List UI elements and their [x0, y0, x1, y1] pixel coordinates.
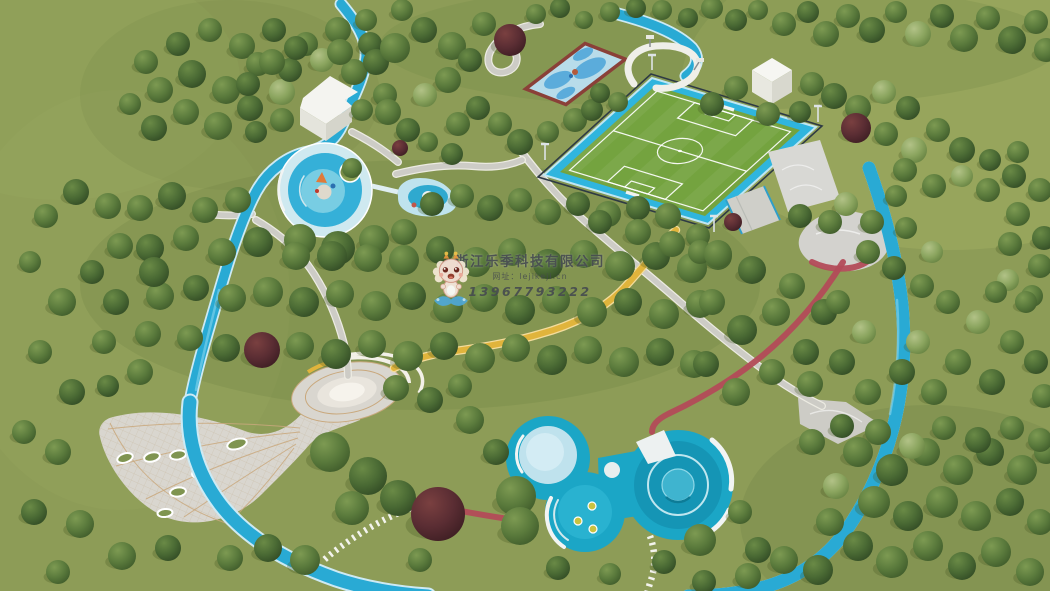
tree	[762, 298, 790, 326]
tree	[965, 427, 991, 453]
tree	[590, 83, 610, 103]
tree	[243, 227, 273, 257]
tree	[926, 486, 958, 518]
tree	[155, 535, 181, 561]
tree	[355, 9, 377, 31]
tree	[48, 288, 76, 316]
tree	[361, 291, 391, 321]
tree	[856, 240, 880, 264]
tree	[183, 275, 209, 301]
tree	[535, 199, 561, 225]
tree	[859, 17, 885, 43]
tree	[655, 203, 681, 229]
tree	[770, 546, 798, 574]
tree	[284, 36, 308, 60]
tree	[599, 563, 621, 585]
tree	[310, 432, 350, 472]
tree	[936, 290, 960, 314]
tree	[173, 225, 199, 251]
tree	[177, 325, 203, 351]
tree	[738, 256, 766, 284]
tree	[380, 480, 416, 516]
tree	[976, 178, 1000, 202]
tree	[793, 339, 819, 365]
tree	[212, 334, 240, 362]
tree	[852, 320, 876, 344]
tree	[759, 359, 785, 385]
tree	[921, 379, 947, 405]
park-render: 浙江乐季科技有限公司 网址：lejikeji.cn 13967793222	[0, 0, 1050, 591]
tree	[577, 297, 607, 327]
tree	[860, 210, 884, 234]
tree	[141, 115, 167, 141]
tree	[327, 39, 353, 65]
tree	[127, 195, 153, 221]
tree	[979, 149, 1001, 171]
tree	[566, 192, 590, 216]
tree	[813, 21, 839, 47]
tree	[127, 359, 153, 385]
tree	[821, 83, 847, 109]
pool-dot	[574, 517, 582, 525]
tree	[823, 473, 849, 499]
tree	[727, 315, 757, 345]
tree	[253, 277, 283, 307]
tree	[380, 33, 410, 63]
tree	[418, 132, 438, 152]
tree	[961, 501, 991, 531]
tree	[646, 338, 674, 366]
tree	[843, 531, 873, 561]
tree	[829, 349, 855, 375]
tree	[976, 6, 1000, 30]
tree	[626, 196, 650, 220]
tree	[218, 284, 246, 312]
play-structure-icon	[569, 74, 573, 78]
tree	[841, 113, 871, 143]
tree	[876, 546, 908, 578]
tree	[1007, 455, 1037, 485]
tree	[748, 0, 768, 20]
tree	[477, 195, 503, 221]
tree	[789, 101, 811, 123]
pool-deck-circle	[604, 462, 620, 478]
tree	[204, 112, 232, 140]
tree	[855, 379, 881, 405]
tree	[608, 92, 628, 112]
tree	[262, 18, 286, 42]
play-equipment-icon	[412, 203, 417, 208]
tree	[926, 118, 950, 142]
tree	[1000, 416, 1024, 440]
tree	[949, 137, 975, 163]
tree	[501, 507, 539, 545]
tree	[342, 158, 362, 178]
tree	[413, 83, 437, 107]
tree	[858, 486, 890, 518]
tree	[290, 545, 320, 575]
tree	[1002, 164, 1026, 188]
tree	[1015, 291, 1037, 313]
tree	[652, 550, 676, 574]
tree	[797, 371, 823, 397]
tree	[678, 8, 698, 28]
tree	[588, 210, 612, 234]
tree	[922, 174, 946, 198]
tree	[270, 108, 294, 132]
tree	[826, 290, 850, 314]
tree	[600, 2, 620, 22]
tree	[614, 288, 642, 316]
tree	[948, 552, 976, 580]
tree	[724, 213, 742, 231]
tree	[1016, 558, 1044, 586]
tree	[420, 192, 444, 216]
tree	[103, 289, 129, 315]
tree	[92, 330, 116, 354]
tree	[575, 11, 593, 29]
tree	[335, 491, 369, 525]
play-equipment-icon	[331, 184, 336, 189]
tree	[483, 439, 509, 465]
tree	[979, 369, 1005, 395]
tree	[505, 295, 535, 325]
tree	[537, 345, 567, 375]
tree	[458, 48, 482, 72]
tree	[874, 122, 898, 146]
tree	[134, 50, 158, 74]
tree	[461, 247, 491, 277]
tree	[354, 244, 382, 272]
tree	[392, 140, 408, 156]
tree	[456, 406, 484, 434]
splash-center-island	[317, 185, 332, 200]
tree	[326, 280, 354, 308]
tree	[217, 545, 243, 571]
tree	[834, 192, 858, 216]
tree	[358, 330, 386, 358]
tree	[80, 260, 104, 284]
tree	[398, 282, 426, 310]
tree	[244, 332, 280, 368]
tree	[321, 339, 351, 369]
tree	[966, 310, 990, 334]
tree	[351, 99, 373, 121]
tree	[996, 488, 1024, 516]
tree	[59, 379, 85, 405]
tree	[930, 4, 954, 28]
tree	[448, 374, 472, 398]
tree	[1024, 350, 1048, 374]
tree	[19, 251, 41, 273]
tree	[1024, 10, 1048, 34]
tree	[945, 349, 971, 375]
tree	[704, 240, 732, 268]
tree	[788, 204, 812, 228]
tree	[396, 118, 420, 142]
play-equipment-icon	[315, 189, 319, 193]
tree	[985, 281, 1007, 303]
tree	[135, 321, 161, 347]
tree	[803, 555, 833, 585]
tree	[107, 233, 133, 259]
tree	[893, 501, 923, 531]
tree	[772, 12, 796, 36]
tree	[882, 256, 906, 280]
tree	[885, 1, 907, 23]
tree	[212, 76, 240, 104]
tree	[998, 26, 1026, 54]
tree	[843, 437, 873, 467]
tree	[236, 72, 260, 96]
tree	[465, 343, 495, 373]
tree	[286, 332, 314, 360]
tree	[254, 534, 282, 562]
tree	[411, 17, 437, 43]
tree	[818, 210, 842, 234]
tree	[46, 560, 70, 584]
tree	[899, 433, 925, 459]
tree	[533, 249, 563, 279]
tree	[1006, 202, 1030, 226]
tree	[889, 359, 915, 385]
tree	[1007, 141, 1029, 163]
tree	[830, 414, 854, 438]
tree	[466, 96, 490, 120]
tree	[1000, 330, 1024, 354]
tree	[893, 158, 917, 182]
tree	[97, 375, 119, 397]
tree	[488, 112, 512, 136]
tree	[652, 0, 672, 20]
tree	[950, 24, 978, 52]
tree	[998, 232, 1022, 256]
tree	[735, 563, 761, 589]
pool-shallow-center	[526, 433, 564, 471]
tree	[542, 286, 570, 314]
tree	[391, 0, 413, 21]
tree	[932, 416, 956, 440]
tree	[816, 508, 844, 536]
tree	[391, 219, 417, 245]
tree	[349, 457, 387, 495]
tree	[66, 510, 94, 538]
tree	[906, 330, 930, 354]
tree	[981, 537, 1011, 567]
tree	[913, 531, 943, 561]
tree	[526, 4, 546, 24]
tree	[95, 193, 121, 219]
tree	[119, 93, 141, 115]
tree	[659, 231, 685, 257]
tree	[158, 182, 186, 210]
tree	[245, 121, 267, 143]
tree	[192, 197, 218, 223]
tree	[699, 289, 725, 315]
tree	[34, 204, 58, 228]
tree	[408, 548, 432, 572]
tree	[441, 143, 463, 165]
tree	[446, 112, 470, 136]
tree	[649, 299, 679, 329]
tree	[12, 420, 36, 444]
tree	[389, 245, 419, 275]
tree	[63, 179, 89, 205]
pool-circle	[558, 485, 612, 539]
tree	[393, 341, 423, 371]
tree	[375, 99, 401, 125]
tree	[876, 454, 908, 486]
tree	[799, 429, 825, 455]
tree	[800, 72, 824, 96]
tree	[725, 9, 747, 31]
tree	[433, 293, 463, 323]
tree	[108, 542, 136, 570]
tree	[225, 187, 251, 213]
tree	[910, 274, 934, 298]
tree	[570, 240, 598, 268]
tree	[605, 251, 635, 281]
tree	[166, 32, 190, 56]
tree	[269, 79, 295, 105]
tree	[325, 17, 351, 43]
tree	[383, 375, 409, 401]
tree	[836, 4, 860, 28]
tree	[317, 241, 347, 271]
tree	[472, 12, 496, 36]
tree	[435, 67, 461, 93]
tree	[745, 537, 771, 563]
tree	[722, 378, 750, 406]
tree	[872, 80, 896, 104]
tree	[609, 347, 639, 377]
tree	[237, 95, 263, 121]
tree	[450, 184, 474, 208]
tree	[921, 241, 943, 263]
tree	[625, 219, 651, 245]
tree	[508, 188, 532, 212]
tree	[951, 165, 973, 187]
tree	[426, 236, 454, 264]
tree	[417, 387, 443, 413]
tree	[546, 556, 570, 580]
tree	[147, 77, 173, 103]
tree	[507, 129, 533, 155]
tree	[502, 334, 530, 362]
tree	[537, 121, 559, 143]
tree	[779, 273, 805, 299]
pool-dot	[589, 525, 597, 533]
tree	[289, 287, 319, 317]
tree	[45, 439, 71, 465]
tree	[728, 500, 752, 524]
tree	[498, 238, 526, 266]
tree	[259, 49, 285, 75]
tree	[430, 332, 458, 360]
tree	[21, 499, 47, 525]
tree	[139, 257, 169, 287]
tree	[411, 487, 465, 541]
play-structure-icon	[572, 69, 578, 75]
tree	[198, 18, 222, 42]
tree	[494, 24, 526, 56]
tree	[208, 238, 236, 266]
tree	[574, 336, 602, 364]
tree	[684, 524, 716, 556]
park-canvas	[0, 0, 1050, 591]
tree	[173, 99, 199, 125]
tree	[905, 21, 931, 47]
tree	[470, 284, 498, 312]
tree	[756, 102, 780, 126]
tree	[896, 96, 920, 120]
tree	[895, 217, 917, 239]
tree	[943, 455, 973, 485]
tree	[885, 185, 907, 207]
tree	[28, 340, 52, 364]
tree	[178, 60, 206, 88]
tree	[693, 351, 719, 377]
tree	[865, 419, 891, 445]
tree	[282, 242, 310, 270]
tree	[724, 76, 748, 100]
tree	[700, 92, 724, 116]
pool-dot	[588, 502, 596, 510]
tree	[797, 1, 819, 23]
